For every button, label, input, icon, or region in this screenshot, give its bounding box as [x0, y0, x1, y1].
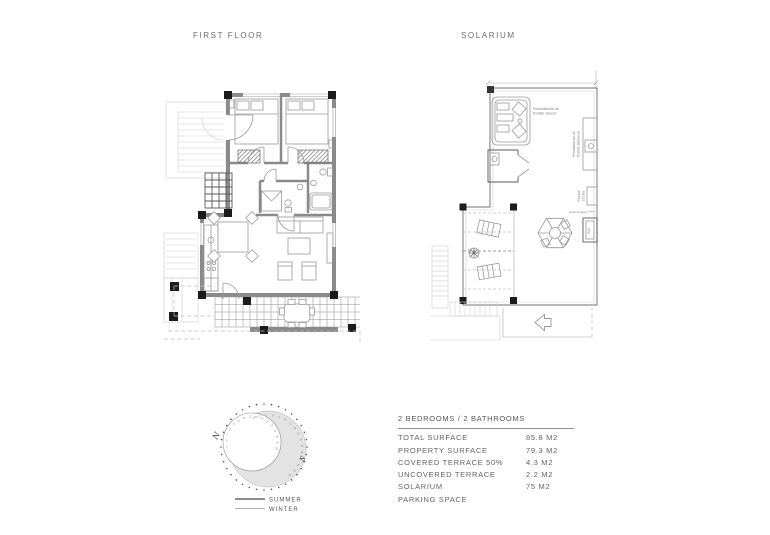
spec-row-value: 75 M2 [526, 483, 574, 490]
spec-table-row: SOLARIUM 75 M2 [398, 483, 574, 490]
dimension-lines [486, 70, 599, 90]
ac-label: A/A [587, 228, 591, 234]
spec-row-label: COVERED TERRACE 50% [398, 459, 526, 466]
solarium-title: SOLARIUM [461, 31, 516, 40]
bathroom-2 [262, 184, 303, 212]
spec-table-row: UNCOVERED TERRACE 2.2 M2 [398, 471, 574, 478]
spec-row-value: 4.3 M2 [526, 459, 574, 466]
closets [238, 150, 328, 163]
kitchen-area [587, 187, 597, 205]
plant [469, 248, 479, 258]
north-label: N [210, 430, 222, 442]
sun-lounger [477, 263, 501, 280]
bedroom-1 [229, 99, 278, 144]
spec-rows: TOTAL SURFACE 85.8 M2 PROPERTY SURFACE 7… [398, 434, 574, 502]
sun-lounger [477, 220, 501, 237]
storage-room [488, 150, 529, 182]
sun-legend: SUMMER WINTER [235, 498, 302, 514]
spec-row-label: PARKING SPACE [398, 496, 526, 503]
solarium-staircase [430, 246, 500, 340]
jacuzzi [492, 97, 530, 145]
winter-legend-label: WINTER [269, 507, 299, 513]
sun-compass: 567891011121314151617181920 567891011121… [195, 398, 330, 520]
spec-table-row: TOTAL SURFACE 85.8 M2 [398, 434, 574, 441]
pergola [460, 204, 518, 305]
spec-table-row: PROPERTY SURFACE 79.3 M2 [398, 447, 574, 454]
corner-column [487, 86, 494, 93]
first-floor-plan [160, 50, 400, 395]
barbecue-label-line1: Preinstalación de [572, 131, 576, 157]
water-point-label: punto de agua [569, 210, 587, 214]
spec-row-value: 85.8 M2 [526, 434, 574, 441]
lower-terrace [503, 308, 592, 337]
solarium-plan: Preinstalación de Posible Jacuzzi Preins… [430, 50, 650, 395]
summer-legend-label: SUMMER [269, 498, 302, 504]
exterior-staircase-bottom [164, 233, 198, 322]
jacuzzi-label-line1: Preinstalación de [533, 107, 559, 111]
direction-arrow [535, 315, 551, 331]
summer-sun-circle [223, 413, 281, 471]
jacuzzi-label-line2: Posible Jacuzzi [533, 112, 557, 116]
spec-row-value: 79.3 M2 [526, 447, 574, 454]
spec-row-value: 2.2 M2 [526, 471, 574, 478]
terrace [215, 297, 360, 332]
kitchen-label-line2: Cocina [582, 191, 586, 202]
spec-row-label: PROPERTY SURFACE [398, 447, 526, 454]
spec-row-value [526, 496, 574, 503]
spec-row-label: TOTAL SURFACE [398, 434, 526, 441]
entrance-door [224, 115, 253, 140]
bedroom-2 [286, 99, 334, 148]
bathroom-1 [310, 168, 333, 210]
plan-sheet: FIRST FLOOR SOLARIUM [0, 0, 770, 535]
parasol-dining-set [538, 218, 572, 247]
spec-table-row: COVERED TERRACE 50% 4.3 M2 [398, 459, 574, 466]
spec-row-label: SOLARIUM [398, 483, 526, 490]
kitchen-label-line1: Posible [577, 190, 581, 201]
exterior-staircase-top [166, 102, 226, 178]
first-floor-title: FIRST FLOOR [193, 31, 263, 40]
spec-table-row: PARKING SPACE [398, 496, 574, 503]
specification-table: 2 BEDROOMS / 2 BATHROOMS TOTAL SURFACE 8… [398, 414, 574, 503]
dining-set [208, 212, 259, 263]
living-room [277, 217, 333, 280]
spec-table-header: 2 BEDROOMS / 2 BATHROOMS [398, 414, 574, 429]
spec-row-label: UNCOVERED TERRACE [398, 471, 526, 478]
barbecue-label-line2: Posible Barbacoa [577, 131, 581, 158]
barbecue-area [583, 118, 597, 170]
